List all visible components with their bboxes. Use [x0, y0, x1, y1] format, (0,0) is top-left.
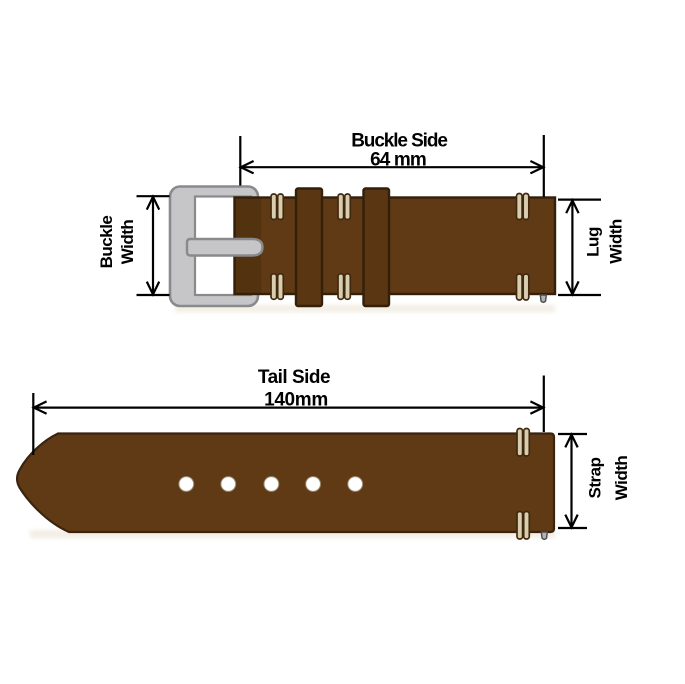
svg-text:Tail Side: Tail Side: [258, 367, 330, 388]
svg-text:Width: Width: [118, 220, 137, 265]
svg-text:Strap: Strap: [586, 457, 605, 498]
svg-text:Width: Width: [612, 456, 631, 501]
svg-text:64 mm: 64 mm: [370, 150, 426, 171]
svg-text:Width: Width: [607, 219, 626, 264]
svg-text:Buckle: Buckle: [97, 216, 116, 269]
svg-text:140mm: 140mm: [264, 390, 328, 411]
svg-text:Lug: Lug: [584, 227, 603, 257]
svg-text:Buckle Side: Buckle Side: [351, 131, 447, 152]
